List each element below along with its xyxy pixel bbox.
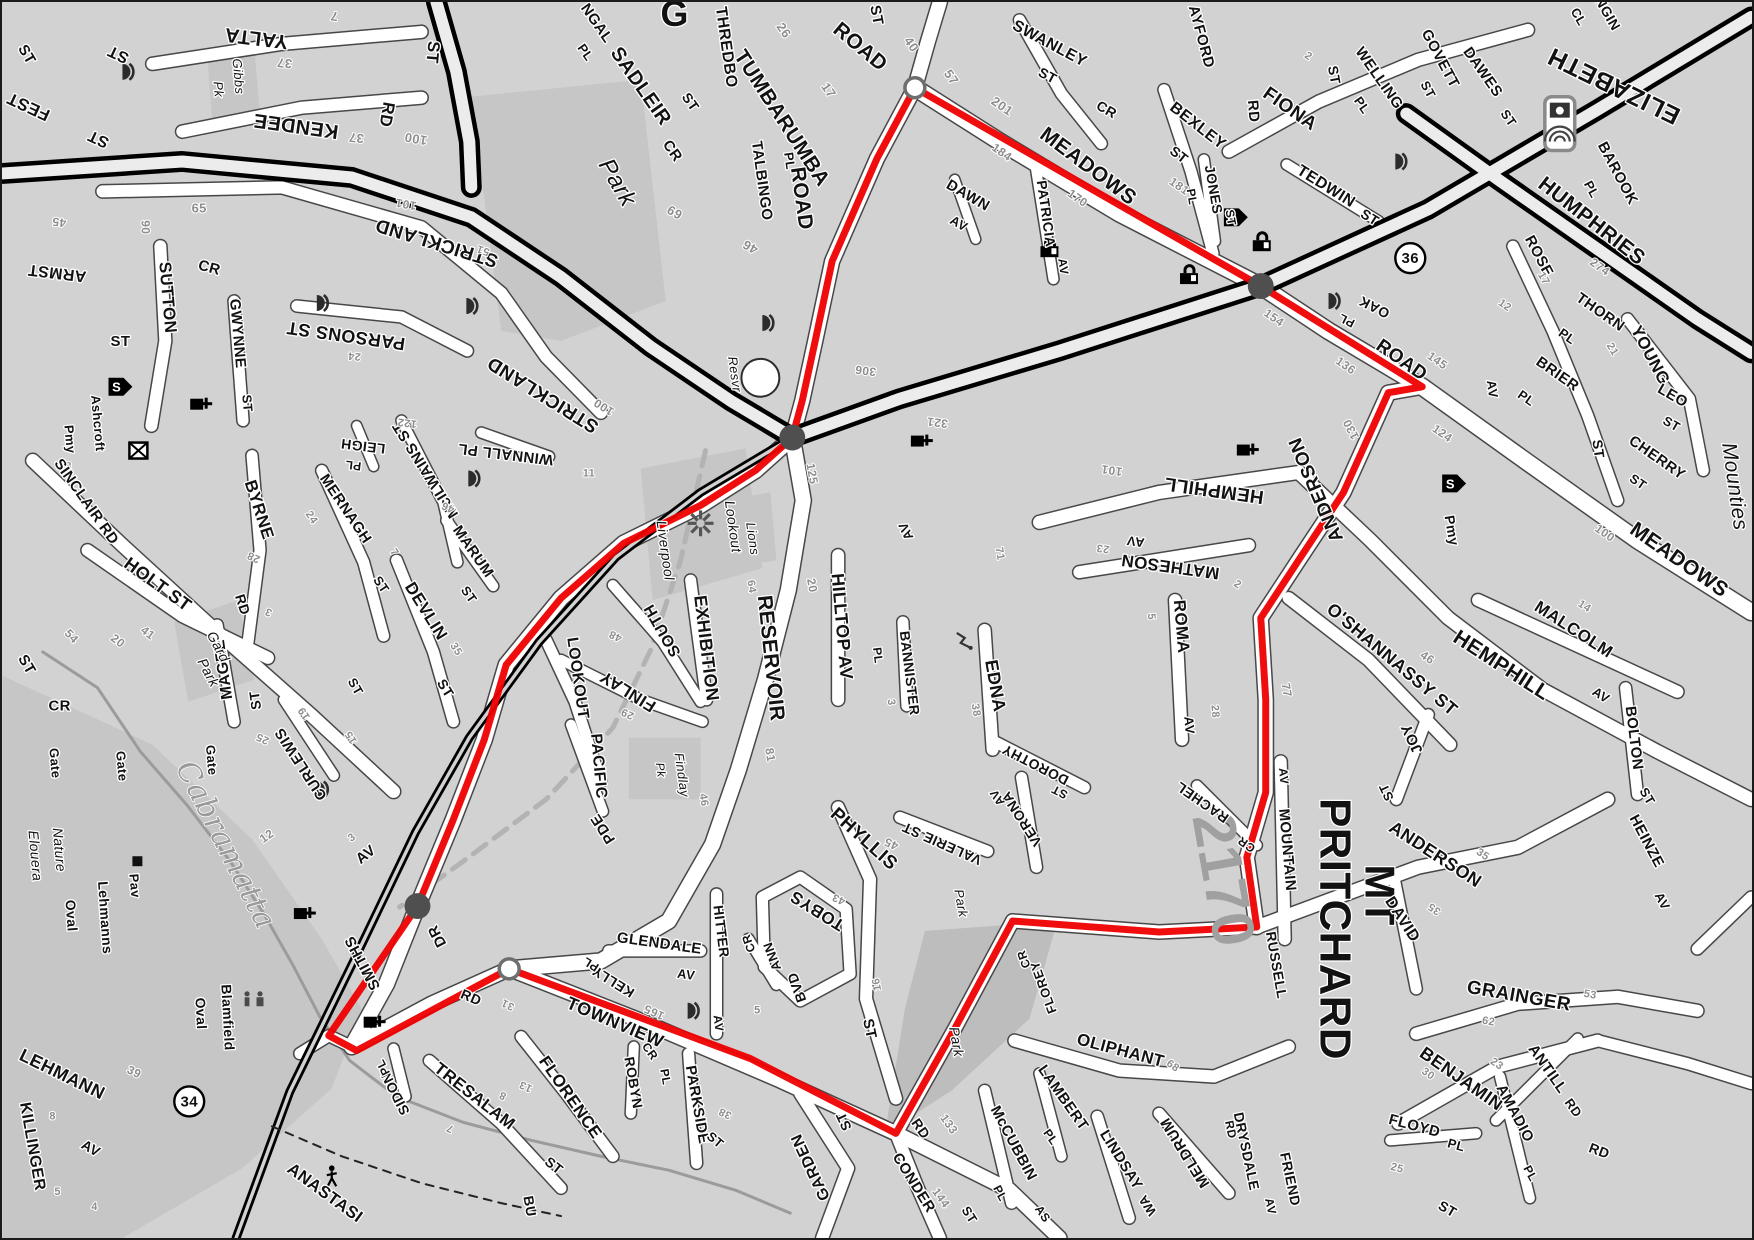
street-label: PL — [1184, 188, 1201, 206]
street-label: 53 — [1583, 988, 1598, 1002]
street-label: BYRNE — [241, 478, 278, 542]
path — [1329, 293, 1337, 309]
street-label: 5 — [54, 1186, 60, 1198]
circle — [244, 991, 249, 996]
street-label: 2 — [1302, 50, 1314, 64]
street-label: ST — [1589, 439, 1607, 460]
street-label: ST — [246, 690, 264, 711]
traffic-signal-dot — [1248, 273, 1274, 299]
street-label: CR — [196, 257, 222, 279]
street-label: 35 — [447, 641, 464, 658]
street-label: 62 — [1481, 1015, 1496, 1029]
street-label: HEMPHILL — [1449, 626, 1554, 705]
text: S — [112, 380, 121, 395]
street-label: ST — [105, 42, 131, 66]
street-label: 54 — [62, 626, 82, 646]
street-label: 130 — [1340, 417, 1362, 442]
street-label: AV — [895, 520, 916, 542]
street-label: ST — [959, 1203, 981, 1226]
camera-icon — [1545, 97, 1575, 151]
street-label: Oval — [63, 899, 81, 932]
street-label: 24 — [303, 509, 320, 527]
street-label: ST — [1223, 208, 1240, 227]
street-road — [1598, 1041, 1752, 1084]
rect — [1191, 275, 1196, 281]
street-label: AV — [353, 842, 380, 868]
street-label: 77 — [1279, 682, 1295, 698]
path — [762, 315, 770, 331]
street-label: PL — [344, 458, 362, 474]
street-label: 7 — [330, 9, 339, 25]
street-label: AV — [1590, 684, 1613, 706]
xbox-icon — [129, 443, 147, 459]
traffic-signal-dot — [779, 425, 805, 451]
school-icon: S — [1442, 474, 1466, 492]
street-label: TUMBARUMBA — [729, 46, 834, 191]
street-label: THORN — [1573, 290, 1628, 336]
street-label: AV — [676, 966, 696, 983]
street-label: 46 — [740, 237, 761, 258]
street-label: HEINZE — [1626, 812, 1668, 870]
street-label: 48 — [607, 627, 624, 643]
street-label: Park — [951, 888, 971, 919]
street-label: 25 — [254, 730, 271, 746]
street-label: TALBINGO — [748, 140, 776, 222]
street-label: Mounties — [1717, 441, 1752, 532]
street-label: 57 — [941, 67, 962, 88]
street-label: 21 — [1604, 341, 1621, 358]
street-label: 26 — [773, 20, 794, 41]
street-label: 17 — [818, 80, 839, 101]
rect — [132, 856, 142, 866]
street-label: AV — [1276, 767, 1291, 785]
path — [1258, 233, 1267, 240]
street-label: 69 — [664, 202, 685, 223]
street-label: PL — [657, 1068, 674, 1086]
street-label: Oval — [192, 997, 210, 1030]
street-label: 12 — [1496, 297, 1514, 314]
street-label: WA — [1135, 1192, 1159, 1218]
traffic-signal-dot — [405, 893, 431, 919]
street-label: ST — [1436, 1197, 1460, 1220]
street-label: 3 — [885, 698, 898, 706]
street-road — [1697, 897, 1751, 949]
street-label: Gate — [46, 747, 64, 779]
street-label: 90 — [138, 220, 152, 234]
street-label: ST — [1325, 64, 1344, 85]
halfmoon-icon — [688, 1003, 699, 1019]
street-label: RD — [1587, 1139, 1612, 1161]
street-label: ST — [422, 40, 443, 64]
street-label: 12 — [257, 826, 277, 846]
street-label: 23 — [1096, 541, 1111, 555]
street-label: 2 — [1231, 578, 1243, 592]
street-label: 64 — [745, 579, 759, 594]
path — [466, 298, 474, 314]
street-label: FLORENCE — [535, 1052, 606, 1142]
street-label: 321 — [926, 414, 949, 430]
circle — [1556, 107, 1564, 115]
street-label: 41 — [138, 623, 158, 643]
street-label: 124 — [1430, 422, 1455, 446]
street-label: 100 — [403, 130, 428, 149]
street-label: PARSONS ST — [285, 318, 406, 354]
map-viewport: 3634SSHYALTAST737KENDEE37RDGibbsPkFESTST… — [0, 0, 1754, 1240]
street-label: 122 — [397, 415, 418, 429]
street-label: 31 — [500, 996, 517, 1012]
street-label: 306 — [854, 363, 877, 379]
street-label: PDE — [587, 811, 619, 847]
reservoir-pond — [741, 359, 779, 397]
rect — [1264, 242, 1269, 248]
street-label: MELDRUM — [1157, 1115, 1213, 1191]
street-label: AV — [711, 1014, 727, 1032]
church-icon — [294, 907, 316, 919]
roundabout-icon — [905, 78, 925, 98]
street-label: ST — [859, 1017, 880, 1040]
street-label: FRIEND — [1277, 1151, 1304, 1207]
street-label: ANASTASI — [284, 1159, 367, 1226]
street-label: Gate — [113, 750, 131, 782]
street-label: CR — [659, 137, 686, 165]
street-label: OAK — [1356, 293, 1392, 322]
street-label: NGIN — [1592, 2, 1624, 33]
path — [1395, 154, 1403, 170]
route-shield: 34 — [174, 1086, 204, 1116]
street-label: PL — [1581, 178, 1602, 200]
street-label: G — [660, 2, 688, 34]
street-label: AV — [1652, 890, 1674, 913]
street-label: 5 — [1145, 613, 1158, 621]
street-label: 8 — [49, 1110, 55, 1122]
rect — [257, 997, 264, 1006]
halfmoon-icon — [1329, 293, 1340, 309]
street-label: 101 — [1100, 462, 1123, 479]
street-label: 8 — [497, 1088, 508, 1102]
street-label: PL — [1351, 94, 1373, 117]
street-label: ST — [866, 4, 886, 27]
route-shield: 36 — [1395, 243, 1425, 273]
route-shield-number: 34 — [181, 1093, 199, 1110]
street-label: RD — [1244, 99, 1263, 123]
street-label: CR — [739, 932, 758, 954]
street-label: TEDWIN — [1294, 162, 1358, 211]
street-label: 25 — [1389, 1161, 1405, 1176]
street-label: 20 — [804, 577, 820, 593]
street-label: RD — [1222, 1119, 1239, 1140]
street-label: ST — [111, 333, 131, 350]
street-label: GWYNNE — [226, 298, 249, 369]
street-label: MEADOWS — [1626, 518, 1733, 602]
street-label: 24 — [347, 349, 362, 362]
street-label: PRITCHARD — [1311, 798, 1360, 1060]
street-label: THREDBO — [712, 6, 740, 89]
text: S — [1446, 476, 1455, 491]
street-label: CR — [1094, 97, 1120, 121]
street-label: BU — [520, 1195, 539, 1218]
street-label: AV — [1484, 379, 1501, 399]
street-label: ST — [458, 583, 480, 606]
circle — [969, 646, 973, 650]
street-label: ST — [1498, 107, 1520, 130]
path — [688, 1003, 696, 1019]
halfmoon-icon — [468, 470, 479, 486]
street-label: 46 — [697, 793, 711, 808]
major-road — [1406, 114, 1751, 353]
street-label: ST — [1660, 413, 1683, 435]
street-label: AV — [1126, 533, 1146, 550]
street-label: 13 — [517, 1078, 534, 1094]
street-label: CL — [1568, 5, 1590, 28]
street-label: 4 — [91, 1201, 98, 1213]
street-label: PL — [870, 647, 886, 665]
street-label: FEST — [4, 88, 53, 124]
street-label: 16 — [870, 977, 884, 992]
street-label: DAWES — [1459, 44, 1505, 100]
route-shield-number: 36 — [1402, 250, 1419, 267]
street-label: Pmy — [1442, 514, 1463, 547]
street-label: 38 — [969, 703, 983, 718]
street-label: ST — [679, 90, 703, 114]
street-label: YOUNG — [1627, 323, 1674, 389]
street-label: ST — [14, 42, 39, 68]
street-label: PL — [1446, 1135, 1467, 1154]
street-label: ST — [1627, 471, 1650, 493]
street-label: ST — [239, 394, 255, 413]
street-label: 71 — [993, 546, 1007, 561]
street-label: Pmy — [61, 424, 78, 454]
street-label: Gibbs — [230, 58, 248, 95]
street-label: BVD — [784, 970, 810, 1004]
school-icon: S — [108, 378, 132, 396]
street-label: 5 — [754, 1005, 761, 1017]
street-label: ST — [14, 652, 39, 678]
street-label: ST — [345, 675, 367, 698]
street-label: 37 — [348, 130, 365, 147]
street-label: ST — [85, 126, 111, 150]
roundabout-icon — [499, 959, 519, 979]
street-label: 3 — [346, 831, 358, 845]
street-label: SINCLAIR RD — [50, 456, 122, 548]
path — [468, 470, 476, 486]
street-label: AV — [1055, 257, 1071, 275]
street-label: ST — [1418, 78, 1439, 100]
street-label: 7 — [445, 1121, 456, 1135]
street-label: ARMST — [27, 261, 87, 285]
halfmoon-icon — [762, 315, 773, 331]
padlock-icon — [1180, 266, 1198, 284]
rect — [1051, 248, 1056, 254]
street-label: 28 — [1208, 704, 1221, 718]
street-label: PL — [575, 41, 597, 64]
street-label: DR — [425, 922, 451, 950]
street-label: 3 — [263, 605, 274, 619]
street-label: Pk — [210, 81, 226, 99]
rect — [245, 997, 250, 1006]
halfmoon-icon — [1395, 154, 1406, 170]
polyline — [957, 633, 971, 648]
street-label: Pav — [126, 873, 143, 899]
street-label: 37 — [276, 55, 293, 72]
street-label: NGAL — [577, 2, 616, 46]
street-map: 3634SSHYALTAST737KENDEE37RDGibbsPkFESTST… — [2, 2, 1752, 1238]
street-label: Pk — [653, 762, 669, 779]
street-label: 133 — [937, 1111, 961, 1136]
street-label: BAROOK — [1594, 139, 1641, 208]
street-label: 46 — [1418, 648, 1437, 667]
street-label: 81 — [762, 747, 778, 763]
circle — [329, 1165, 335, 1171]
street-label: 14 — [1576, 598, 1594, 615]
path — [1185, 266, 1194, 273]
street-label: 65 — [192, 200, 207, 215]
church-icon — [190, 398, 212, 410]
street-label: CR — [48, 698, 70, 715]
padlock-icon — [1253, 233, 1271, 251]
church-icon — [911, 435, 933, 447]
zigzag-icon — [957, 633, 973, 650]
blacksq-icon — [132, 856, 142, 866]
street-label: 35 — [1426, 900, 1444, 917]
street-label: 45 — [51, 214, 67, 230]
street-label: AYFORD — [1185, 4, 1218, 70]
street-label: AV — [1262, 1197, 1279, 1216]
halfmoon-icon — [466, 298, 477, 314]
street-label: RD — [1562, 1096, 1585, 1121]
street-label: LEIGH — [340, 436, 386, 457]
circle — [257, 991, 262, 996]
street-label: DOROTHY — [999, 741, 1071, 788]
street-label: 201 — [989, 93, 1016, 118]
street-label: PL — [1515, 387, 1538, 409]
street-label: ROAD — [829, 18, 892, 76]
street-label: 20 — [108, 631, 128, 651]
church-icon — [1237, 444, 1259, 456]
street-label: 11 — [583, 467, 595, 479]
street-label: 38 — [717, 1105, 734, 1121]
street-label: AV — [1181, 716, 1197, 735]
street-label: Ashcroft — [88, 395, 108, 453]
